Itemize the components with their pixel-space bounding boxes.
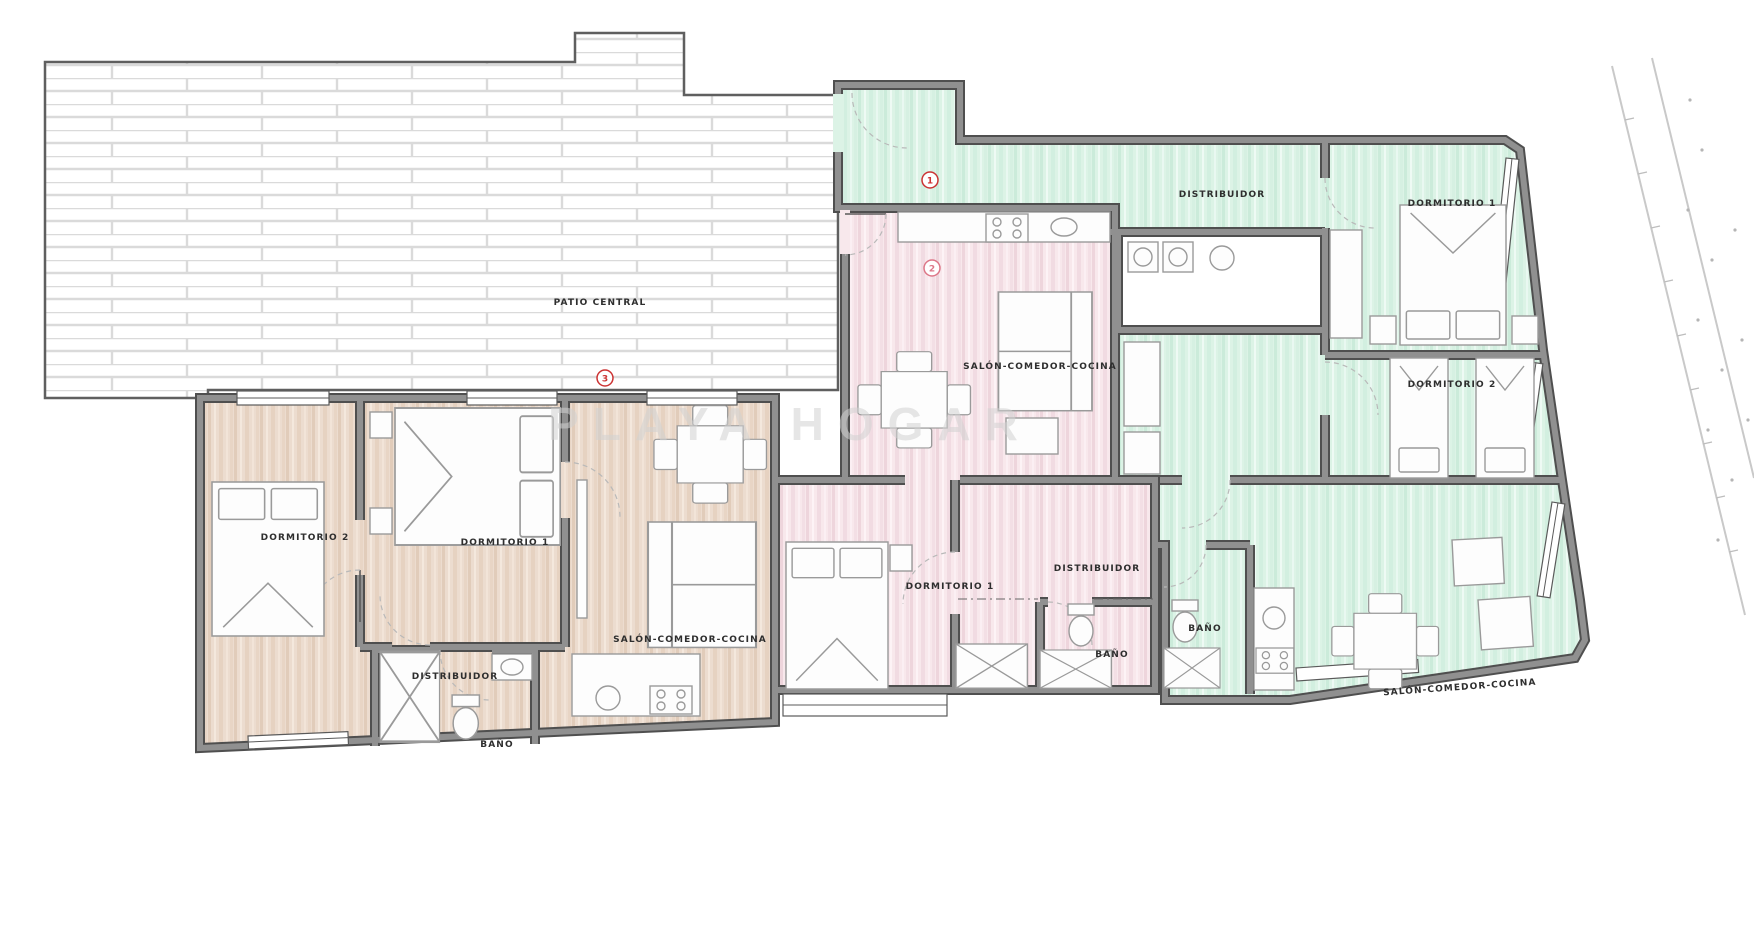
marker-number: 1: [927, 177, 933, 187]
patio-door-opening: [840, 210, 850, 254]
utility-sink: [1210, 246, 1234, 270]
watermark-text: PLAYA HOGAR: [548, 398, 1032, 450]
double-bed: [212, 482, 324, 636]
room-label: BAÑO: [1095, 649, 1128, 660]
nightstand: [370, 508, 392, 534]
toilet: [1068, 604, 1094, 646]
room-label: BAÑO: [480, 739, 513, 750]
floor-plan-drawing: PLAYA HOGAR PATIO CENTRAL DORMITORIO 2 D…: [0, 0, 1754, 946]
side-table: [1478, 596, 1533, 650]
room-label: DORMITORIO 1: [1408, 199, 1497, 209]
room-label: DORMITORIO 2: [1408, 380, 1497, 390]
single-bed: [1390, 358, 1448, 478]
kitchen-sink: [596, 686, 620, 710]
bathroom-sink-bowl: [501, 659, 523, 675]
window: [467, 391, 557, 405]
sofa: [998, 292, 1092, 411]
tv-cabinet: [577, 480, 587, 618]
patio-label: PATIO CENTRAL: [554, 298, 647, 308]
kitchen-sink: [1051, 218, 1077, 236]
double-bed: [786, 542, 888, 689]
room-label: DISTRIBUIDOR: [1179, 190, 1266, 200]
room-label: DORMITORIO 1: [461, 538, 550, 548]
toilet: [452, 695, 479, 739]
patio-central-region: [45, 33, 838, 398]
patio-surface: [45, 33, 838, 398]
street-boundary: [1612, 58, 1754, 615]
stove: [986, 214, 1028, 242]
double-bed: [1400, 205, 1506, 345]
kitchen-counter: [1254, 588, 1294, 690]
shower: [956, 644, 1027, 688]
toilet: [1172, 600, 1198, 642]
shower: [1164, 648, 1220, 688]
marker-number: 2: [929, 265, 935, 275]
balcony: [783, 694, 947, 716]
street-line: [1612, 66, 1745, 615]
wardrobe: [1124, 432, 1160, 474]
armchair: [1452, 537, 1504, 586]
nightstand: [890, 545, 912, 571]
wardrobe: [1330, 230, 1362, 338]
wardrobe: [1124, 342, 1160, 426]
kitchen-sink: [1263, 607, 1285, 629]
room-label: DORMITORIO 2: [261, 533, 350, 543]
room-label: DORMITORIO 1: [906, 582, 995, 592]
nightstand: [370, 412, 392, 438]
room-label: DISTRIBUIDOR: [412, 672, 499, 682]
marker-number: 3: [602, 375, 608, 385]
single-bed: [1476, 358, 1534, 478]
nightstand: [1512, 316, 1538, 344]
street-line: [1652, 58, 1754, 478]
nightstand: [1370, 316, 1396, 344]
window: [237, 391, 329, 405]
washing-machine-door: [1169, 248, 1187, 266]
stove: [650, 686, 692, 714]
double-bed: [395, 408, 560, 545]
street-dots: [1686, 98, 1749, 541]
stove: [1256, 648, 1294, 673]
floor-plan-page: PLAYA HOGAR PATIO CENTRAL DORMITORIO 2 D…: [0, 0, 1754, 946]
room-label: BAÑO: [1188, 623, 1221, 634]
room-label: SALÓN-COMEDOR-COCINA: [613, 633, 767, 645]
room-label: DISTRIBUIDOR: [1054, 564, 1141, 574]
shower: [380, 652, 440, 742]
room-label: SALÓN-COMEDOR-COCINA: [963, 360, 1117, 372]
sofa: [648, 522, 756, 647]
entrance-opening: [833, 94, 844, 152]
washing-machine-door: [1134, 248, 1152, 266]
